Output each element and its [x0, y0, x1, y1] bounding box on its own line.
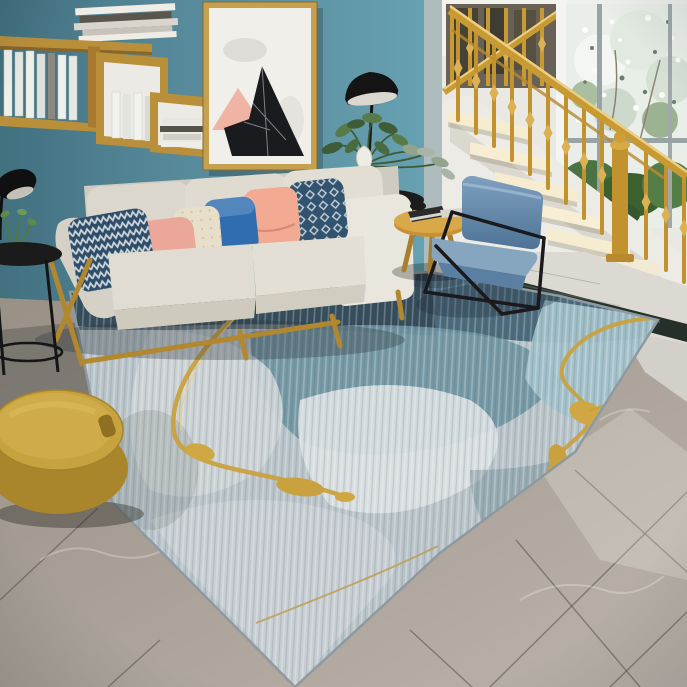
vignette-overlay — [0, 0, 687, 687]
living-room-illustration — [0, 0, 687, 687]
living-room-photo — [0, 0, 687, 687]
